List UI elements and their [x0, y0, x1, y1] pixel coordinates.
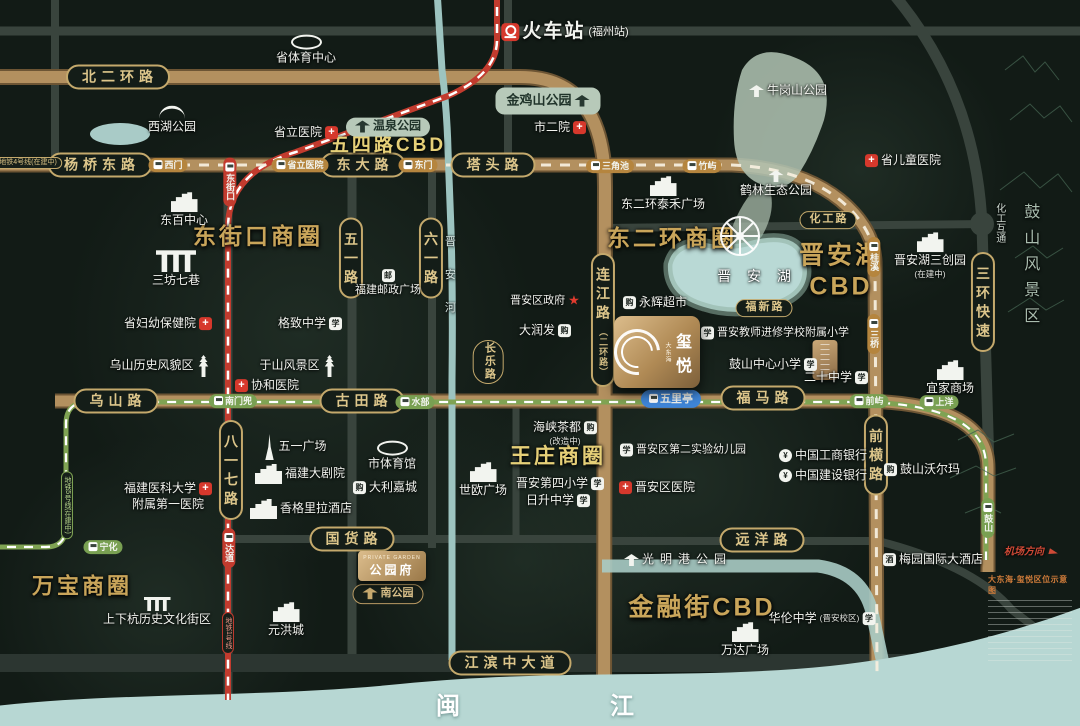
cross-icon: + [865, 154, 878, 167]
poi-shieryuan-hospital-tx: 市二院 [534, 121, 570, 135]
station-qianyu: 前屿 [849, 394, 888, 408]
build-icon [936, 360, 963, 380]
poi-guangminggang-park-tx: 光明港公园 [642, 553, 732, 567]
road-qianheng: 前横路 [864, 415, 888, 496]
poi-medical-university: 福建医科大学+附属第一医院 [124, 482, 212, 512]
pav-icon [363, 587, 378, 599]
area-wangzhuang-tx: 王庄商圈 [510, 445, 606, 469]
road-lianjiang-sb: （二环路） [598, 327, 608, 377]
poi-shengli-hospital-tx: 省立医院 [274, 126, 322, 140]
build-icon [731, 622, 758, 642]
shop-icon: 购 [884, 463, 897, 476]
area-dongjiekou: 东街口商圈 [193, 223, 323, 249]
station-gushan: 鼓山 [981, 498, 994, 538]
pag-icon [323, 355, 337, 377]
shop-icon: 购 [623, 296, 636, 309]
pav-icon [575, 95, 590, 107]
poi-wanda-plaza-tx: 万达广场 [721, 644, 769, 658]
poi-ikea: 宜家商场 [926, 360, 974, 396]
shop-icon: 购 [353, 481, 366, 494]
road-yangqiaodong-tx: 杨桥东路 [64, 156, 140, 172]
poi-darunfa: 大润发购 [519, 324, 571, 338]
poi-ikea-tx: 宜家商场 [926, 382, 974, 396]
area-dongerhuan-tx: 东二环商圈 [607, 225, 737, 251]
poi-shangri-la-hotel: 香格里拉酒店 [250, 499, 352, 519]
station-sanjiaochi-tx: 三角池 [602, 161, 629, 171]
poi-grand-theater: 福建大剧院 [255, 464, 345, 484]
poi-icbc-bank: ¥中国工商银行 [779, 449, 867, 463]
poi-hualun-school-tx: 华伦中学 [769, 612, 817, 626]
poi-no4-primary-tx: 晋安第四小学 [516, 477, 588, 491]
poi-sanchuang-park-sb: (在建中) [914, 270, 945, 280]
station-wuliting: 五里亭 [641, 390, 701, 408]
build-icon [255, 464, 282, 484]
area-dongjiekou-tx: 东街口商圈 [193, 223, 323, 249]
poi-sanchuang-park-tx: 晋安湖三创园 [894, 254, 966, 268]
road-wushan-tx: 乌山路 [90, 392, 147, 408]
road-jiangbinzhong-tx: 江滨中大道 [465, 654, 560, 670]
poi-haixia-tea: 海峡茶都购(改造中) [533, 421, 597, 447]
school-icon: 学 [591, 477, 604, 490]
poi-teachers-school: 学晋安教师进修学校附属小学 [701, 327, 849, 340]
tag-metro-line4: 地铁4号线(在建中) [0, 157, 62, 169]
cross-icon: + [199, 483, 212, 496]
poi-walmart: 购鼓山沃尔玛 [884, 463, 960, 477]
station-dongmen: 东门 [398, 158, 437, 172]
poi-jinan-government-tx: 晋安区政府 [510, 295, 565, 308]
pav-icon [768, 170, 783, 182]
poi-shangxiahang: 上下杭历史文化街区 [103, 593, 211, 627]
poi-helin-eco-park: 鹤林生态公园 [740, 170, 812, 198]
poi-xiehe-hospital-tx: 协和医院 [251, 379, 299, 393]
tag-metro-line1: 地铁1号线 [222, 612, 234, 654]
cross-icon: + [235, 379, 248, 392]
road-beierhuan-tx: 北二环路 [82, 68, 158, 84]
build-icon [170, 192, 197, 212]
area-wusilu-cbd-tx: 五四路CBD [330, 135, 446, 157]
poi-niugangshan-park-tx: 牛岗山公园 [767, 84, 827, 98]
poi-guangminggang-park: 光明港公园 [624, 553, 732, 567]
station-nanmendou-tx: 南门兜 [225, 396, 252, 406]
station-qianyu-tx: 前屿 [865, 396, 883, 406]
build-icon [250, 499, 277, 519]
road-jiangbinzhong: 江滨中大道 [449, 650, 572, 675]
bus-icon [225, 533, 234, 542]
road-fuxin-tx: 福新路 [746, 301, 785, 314]
road-qianheng-tx: 前横路 [868, 429, 884, 486]
road-sanhuan: 三环快速 [971, 252, 995, 352]
school-icon: 学 [329, 317, 342, 330]
station-wuliting-tx: 五里亭 [660, 392, 693, 405]
poi-children-hospital-tx: 省儿童医院 [881, 154, 941, 168]
bus-icon [649, 394, 658, 403]
poi-post-plaza-tx: 福建邮政广场 [355, 284, 421, 297]
pav-icon [749, 85, 764, 97]
poi-nangongyuan-tx: 南公园 [381, 587, 414, 600]
station-dongjiekou: 东街口 [223, 158, 236, 207]
road-fuxin: 福新路 [736, 299, 793, 317]
bus-icon [984, 503, 993, 512]
area-jinrongjie-cbd-tx: 金融街CBD [628, 594, 775, 623]
poi-train-station: 火车站(福州站) [501, 21, 628, 43]
label-gushan-scenic-tx: 鼓山风景区 [1020, 203, 1038, 333]
bank-icon: ¥ [779, 449, 792, 462]
road-wushan: 乌山路 [74, 388, 159, 413]
station-sanqiao-tx: 三桥 [869, 330, 879, 348]
tag-metro-line1-tx: 地铁1号线 [224, 617, 232, 649]
poi-meiyuan-hotel: 酒梅园国际大酒店 [883, 553, 983, 567]
road-huagong: 化工路 [800, 211, 857, 229]
poi-jinjishan-park: 金鸡山公园 [495, 88, 600, 115]
arch-icon [156, 244, 196, 272]
label-min-river: 闽江 [436, 693, 634, 721]
poi-yonghui-market: 购永辉超市 [623, 296, 687, 310]
location-map: 北二环路杨桥东路东大路塔头路化工路福新路乌山路古田路福马路国货路远洋路江滨中大道… [0, 0, 1080, 726]
poi-ccb-bank: ¥中国建设银行 [779, 469, 867, 483]
tag-metro-line5: 地铁5号线(在建中) [61, 471, 73, 539]
label-airport-direction-tx: 机场方向 [1004, 546, 1044, 558]
shop-icon: 购 [558, 324, 571, 337]
bus-icon [854, 396, 863, 405]
bus-icon [403, 160, 412, 169]
road-huagong-tx: 化工路 [810, 213, 849, 226]
poi-no2-kindergarten: 学晋安区第二实验幼儿园 [620, 444, 746, 457]
road-lianjiang-tx: 连江路 [595, 267, 611, 324]
road-yangqiaodong: 杨桥东路 [48, 152, 152, 177]
road-gutian-tx: 古田路 [336, 392, 393, 408]
pag-icon [197, 355, 211, 377]
poi-niugangshan-park: 牛岗山公园 [749, 84, 827, 98]
poi-shangri-la-hotel-tx: 香格里拉酒店 [280, 502, 352, 516]
label-gushan-scenic: 鼓山风景区 [1020, 203, 1038, 333]
road-yuanyang-tx: 远洋路 [736, 531, 793, 547]
bus-icon [214, 396, 223, 405]
hotel-icon: 酒 [883, 553, 896, 566]
station-shuibu: 水部 [395, 395, 434, 409]
cross-icon: + [619, 481, 632, 494]
poi-yuanhong-city-tx: 元洪城 [268, 624, 304, 638]
road-guohuo: 国货路 [310, 526, 395, 551]
poi-shieryuan-hospital: 市二院+ [534, 121, 586, 135]
poi-train-station-tx: 火车站 [522, 21, 585, 43]
build-icon [469, 462, 496, 482]
station-shuibu-tx: 水部 [411, 397, 429, 407]
poi-no20-school: 二十中学学 [804, 371, 868, 385]
poi-helin-eco-park-tx: 鹤林生态公园 [740, 184, 812, 198]
poi-fuyou-hospital: 省妇幼保健院+ [124, 317, 212, 331]
poi-risheng-school-tx: 日升中学 [526, 494, 574, 508]
area-wusilu-cbd: 五四路CBD [330, 135, 446, 157]
poi-no4-primary: 晋安第四小学学 [516, 477, 604, 491]
poi-teachers-school-tx: 晋安教师进修学校附属小学 [717, 327, 849, 340]
station-ninghua: 宁化 [83, 540, 122, 554]
logo-brand-text: 大东海 [663, 342, 672, 363]
station-shangyang: 上洋 [919, 395, 958, 409]
poi-shiou-plaza-tx: 世欧广场 [459, 484, 507, 498]
road-fuma-tx: 福马路 [737, 389, 794, 405]
poi-grand-theater-tx: 福建大剧院 [285, 467, 345, 481]
bus-icon [591, 161, 600, 170]
pav-icon [624, 554, 639, 566]
poi-gezhi-school: 格致中学学 [278, 317, 342, 331]
poi-yuanhong-city: 元洪城 [268, 602, 304, 638]
station-shenglidyiyuan-tx: 省立医院 [287, 160, 323, 170]
label-jinan-river: 晋安河 [443, 236, 456, 335]
poi-yushan-scenic-tx: 于山风景区 [259, 359, 319, 373]
station-dongjiekou-tx: 东街口 [225, 174, 235, 201]
bus-icon [687, 161, 696, 170]
build-icon [272, 602, 299, 622]
bus-icon [870, 242, 879, 251]
poi-fuyou-hospital-tx: 省妇幼保健院 [124, 317, 196, 331]
poi-wanda-plaza: 万达广场 [721, 622, 769, 658]
poi-darunfa-tx: 大润发 [519, 324, 555, 338]
label-huagong-interchange: 化工互通 [993, 203, 1005, 243]
poi-no20-school-tx: 二十中学 [804, 371, 852, 385]
bus-icon [870, 319, 879, 328]
poi-train-station-sb: (福州站) [588, 26, 628, 39]
poi-jinan-hospital-tx: 晋安区医院 [635, 481, 695, 495]
road-liuyi: 六一路 [419, 218, 443, 299]
garden-plate: PRIVATE GARDEN 公园府 [358, 551, 426, 581]
bus-icon [88, 542, 97, 551]
poi-wenquan-park: 温泉公园 [346, 118, 430, 137]
poi-meiyuan-hotel-tx: 梅园国际大酒店 [899, 553, 983, 567]
poi-sports-gym: 市体育馆 [368, 441, 416, 472]
poi-wushan-historic-tx: 乌山历史风貌区 [109, 359, 193, 373]
bus-icon [400, 397, 409, 406]
stad-icon [376, 441, 407, 456]
area-jinanhu-cbd-tx2: CBD [809, 272, 872, 301]
poi-shangxiahang-tx: 上下杭历史文化街区 [103, 613, 211, 627]
info-panel-body-lines [988, 600, 1072, 666]
poi-gushan-primary-tx: 鼓山中心小学 [729, 358, 801, 372]
road-liuyi-tx: 六一路 [423, 232, 439, 289]
tag-metro-line4-tx: 地铁4号线(在建中) [0, 159, 57, 167]
station-zhuyu: 竹屿 [682, 159, 721, 173]
map-labels-layer: 北二环路杨桥东路东大路塔头路化工路福新路乌山路古田路福马路国货路远洋路江滨中大道… [0, 0, 1080, 726]
road-gutian: 古田路 [320, 388, 405, 413]
poi-sports-gym-tx: 市体育馆 [368, 458, 416, 472]
train-icon [501, 23, 519, 41]
road-beierhuan: 北二环路 [66, 64, 170, 89]
road-changle: 长乐路 [473, 340, 504, 384]
station-sanjiaochi: 三角池 [586, 159, 634, 173]
station-ximen-tx: 西门 [164, 160, 182, 170]
school-icon: 学 [855, 371, 868, 384]
station-zhuyu-tx: 竹屿 [698, 161, 716, 171]
poi-hualun-school: 华伦中学(晋安校区)学 [769, 612, 876, 626]
bus-icon [276, 160, 285, 169]
bus-icon [153, 160, 162, 169]
poi-ccb-bank-tx: 中国建设银行 [795, 469, 867, 483]
poi-risheng-school: 日升中学学 [526, 494, 590, 508]
poi-wuyi-square-tx: 五一广场 [278, 440, 326, 454]
poi-yushan-scenic: 于山风景区 [259, 355, 336, 377]
school-icon: 学 [862, 612, 875, 625]
bridge-icon [159, 106, 185, 119]
label-jinan-lake: 晋 安 湖 [717, 268, 797, 284]
station-ninghua-tx: 宁化 [99, 542, 117, 552]
road-dongda-tx: 东大路 [337, 156, 394, 172]
poi-sanfangqixiang: 三坊七巷 [152, 244, 200, 288]
poi-taihe-plaza-tx: 东二环泰禾广场 [621, 198, 705, 212]
poi-jinjishan-park-tx: 金鸡山公园 [506, 94, 571, 109]
poi-post-plaza: 邮福建邮政广场 [355, 269, 421, 297]
bank-icon: ¥ [779, 469, 792, 482]
garden-name-text: 公园府 [369, 561, 414, 578]
poi-walmart-tx: 鼓山沃尔玛 [900, 463, 960, 477]
poi-medical-university-tx: 福建医科大学 [124, 482, 196, 496]
station-guixi-tx: 桂溪 [869, 253, 879, 271]
station-shenglidyiyuan: 省立医院 [271, 158, 328, 172]
bus-icon [226, 163, 235, 172]
poi-nangongyuan: 南公园 [353, 584, 424, 604]
poi-jinan-government: 晋安区政府★ [510, 294, 580, 309]
label-jinan-lake-tx: 晋 安 湖 [717, 268, 797, 284]
poi-sanchuang-park: 晋安湖三创园(在建中) [894, 232, 966, 280]
logo-ring-icon [605, 320, 670, 385]
stad-icon [290, 35, 321, 50]
station-sanqiao: 三桥 [867, 314, 880, 354]
poi-children-hospital: +省儿童医院 [865, 154, 941, 168]
shop-icon: 购 [584, 422, 597, 435]
road-tatou-tx: 塔头路 [467, 156, 524, 172]
area-dongerhuan: 东二环商圈 [607, 225, 737, 251]
tower-icon [263, 434, 275, 460]
poi-dalijia-tx: 大利嘉城 [369, 481, 417, 495]
school-icon: 学 [620, 444, 633, 457]
poi-medical-university-tx2: 附属第一医院 [132, 498, 204, 512]
build-icon [649, 176, 676, 196]
post-icon: 邮 [382, 269, 395, 282]
arch-icon [143, 593, 170, 611]
station-shangyang-tx: 上洋 [935, 397, 953, 407]
road-changle-tx: 长乐路 [483, 342, 496, 381]
poi-dalijia: 购大利嘉城 [353, 481, 417, 495]
poi-haixia-tea-tx: 海峡茶都 [533, 421, 581, 435]
station-dadao-tx: 达道 [224, 544, 234, 562]
poi-dongbai-center-tx: 东百中心 [160, 214, 208, 228]
poi-haixia-tea-sb: (改造中) [549, 437, 580, 447]
label-min-river-tx: 闽 [436, 693, 460, 721]
poi-icbc-bank-tx: 中国工商银行 [795, 449, 867, 463]
label-min-river-tx2: 江 [610, 693, 634, 721]
wheel-icon [720, 216, 760, 256]
icon-ferris-wheel [720, 216, 760, 256]
label-jinan-river-tx: 晋安河 [443, 236, 456, 335]
poi-sanfangqixiang-tx: 三坊七巷 [152, 274, 200, 288]
poi-xihu-park: 西湖公园 [148, 106, 196, 135]
poi-no2-kindergarten-tx: 晋安区第二实验幼儿园 [636, 444, 746, 457]
cross-icon: + [573, 121, 586, 134]
station-dongmen-tx: 东门 [414, 160, 432, 170]
star-icon: ★ [568, 294, 580, 309]
tag-metro-line5-tx: 地铁5号线(在建中) [63, 476, 71, 534]
poi-taihe-plaza: 东二环泰禾广场 [621, 176, 705, 212]
poi-gezhi-school-tx: 格致中学 [278, 317, 326, 331]
info-panel: 大东海·玺悦区位示意图 [988, 574, 1076, 666]
poi-hualun-school-sb: (晋安校区) [820, 614, 860, 624]
area-jinrongjie-cbd: 金融街CBD [628, 594, 775, 623]
poi-sports-center: 省体育中心 [276, 35, 336, 66]
logo-name-text: 玺悦 [675, 327, 700, 377]
station-guixi: 桂溪 [867, 237, 880, 277]
info-panel-title: 大东海·玺悦区位示意图 [988, 574, 1076, 596]
road-tatou: 塔头路 [451, 152, 536, 177]
school-icon: 学 [577, 494, 590, 507]
station-nanmendou: 南门兜 [209, 394, 257, 408]
poi-sports-center-tx: 省体育中心 [276, 52, 336, 66]
label-airport-direction: 机场方向 [1004, 546, 1058, 558]
poi-wenquan-park-tx: 温泉公园 [373, 120, 421, 134]
label-huagong-interchange-tx: 化工互通 [993, 203, 1005, 243]
road-bayiqi: 八一七路 [219, 420, 243, 520]
bus-icon [924, 397, 933, 406]
road-fuma: 福马路 [721, 385, 806, 410]
poi-wushan-historic: 乌山历史风貌区 [109, 355, 210, 377]
poi-wuyi-square: 五一广场 [263, 434, 326, 460]
pav-icon [355, 120, 370, 132]
road-yuanyang: 远洋路 [720, 527, 805, 552]
road-lianjiang: 连江路（二环路） [591, 253, 615, 387]
cross-icon: + [199, 317, 212, 330]
poi-yonghui-market-tx: 永辉超市 [639, 296, 687, 310]
poi-xiehe-hospital: +协和医院 [235, 379, 299, 393]
station-ximen: 西门 [148, 158, 187, 172]
cross-icon: + [325, 126, 338, 139]
poi-shiou-plaza: 世欧广场 [459, 462, 507, 498]
station-dadao: 达道 [222, 528, 235, 568]
poi-jinan-hospital: +晋安区医院 [619, 481, 695, 495]
area-wangzhuang: 王庄商圈 [510, 445, 606, 469]
school-icon: 学 [701, 327, 714, 340]
station-gushan-tx: 鼓山 [983, 514, 993, 532]
poi-dongbai-center: 东百中心 [160, 192, 208, 228]
poi-shengli-hospital: 省立医院+ [274, 126, 338, 140]
poi-xihu-park-tx: 西湖公园 [148, 121, 196, 135]
project-logo: 大东海 玺悦 [614, 316, 700, 388]
road-guohuo-tx: 国货路 [326, 530, 383, 546]
build-icon [916, 232, 943, 252]
road-bayiqi-tx: 八一七路 [223, 434, 239, 510]
road-sanhuan-tx: 三环快速 [975, 266, 991, 342]
